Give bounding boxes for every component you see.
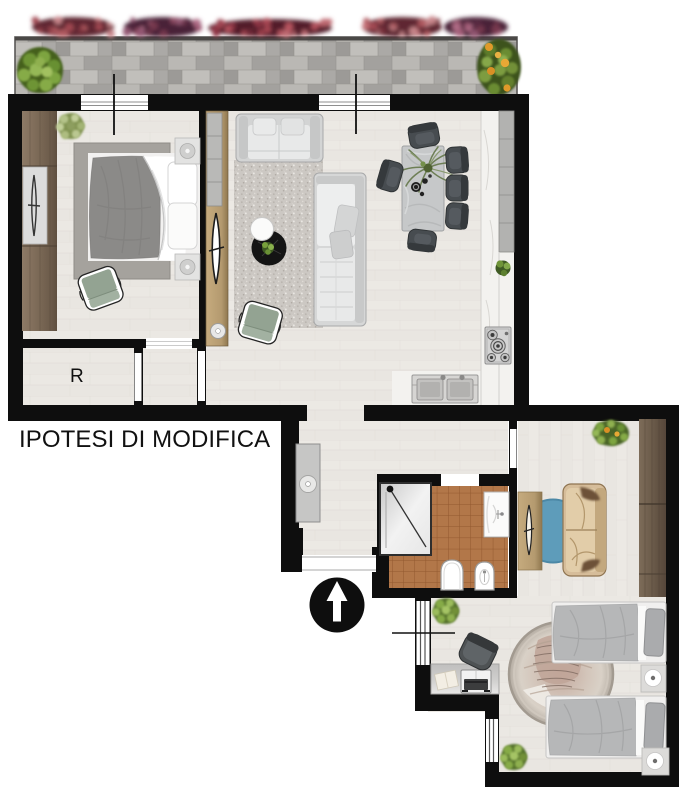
svg-text:IPOTESI DI MODIFICA: IPOTESI DI MODIFICA	[19, 426, 270, 453]
svg-text:R: R	[70, 366, 84, 387]
